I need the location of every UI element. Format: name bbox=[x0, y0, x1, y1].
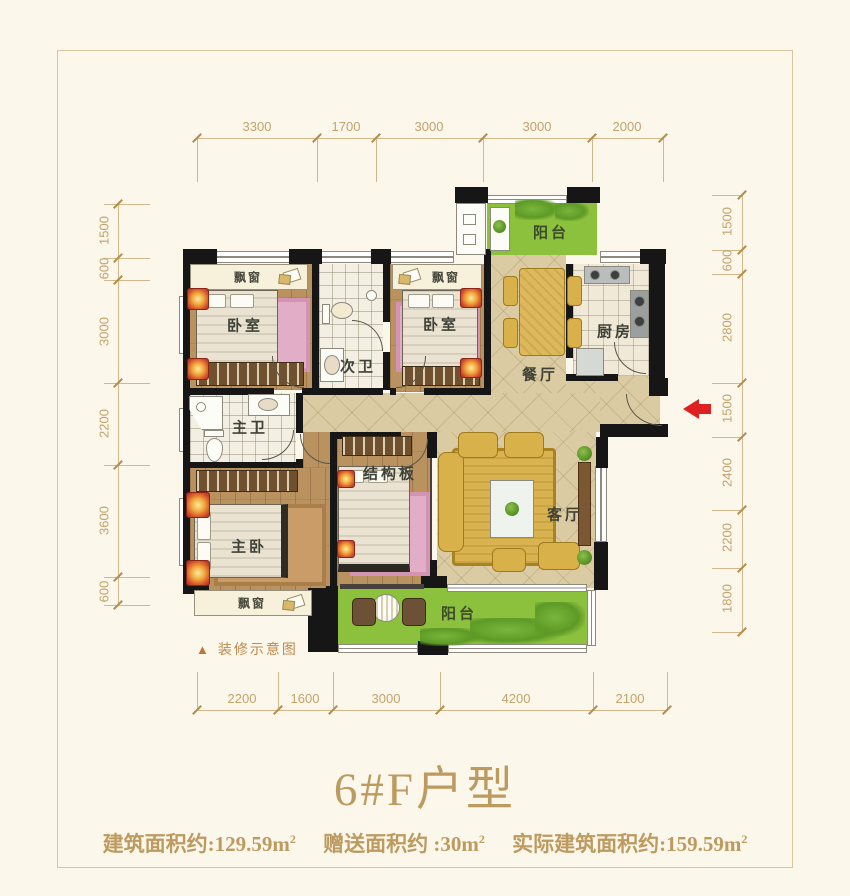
room-label-bedroom: 卧室 bbox=[423, 314, 459, 335]
dining-chair bbox=[503, 276, 518, 306]
plant bbox=[515, 200, 559, 220]
wall-segment bbox=[312, 388, 383, 395]
window bbox=[213, 251, 291, 263]
dim-ext bbox=[376, 138, 377, 182]
wall-segment bbox=[302, 388, 312, 395]
dim-line-bottom bbox=[197, 710, 668, 711]
entry-arrow-icon bbox=[698, 404, 711, 414]
window bbox=[320, 251, 374, 263]
dim-label: 1800 bbox=[720, 569, 735, 629]
balcony-railing bbox=[587, 590, 596, 646]
wall-segment bbox=[330, 432, 337, 590]
dim-ext bbox=[104, 465, 150, 466]
wall-segment bbox=[484, 249, 491, 395]
dim-ext bbox=[663, 138, 664, 182]
room-label-structure-slab: 结构板 bbox=[363, 463, 417, 484]
window bbox=[600, 251, 642, 263]
plant bbox=[555, 203, 589, 221]
area-building: 建筑面积约:129.59m2 bbox=[103, 832, 296, 856]
dim-ext bbox=[197, 672, 198, 710]
room-label-bedroom: 卧室 bbox=[227, 315, 263, 336]
dim-label: 2200 bbox=[720, 508, 735, 568]
dim-ext bbox=[197, 138, 198, 182]
dining-chair bbox=[503, 318, 518, 348]
toilet-tank bbox=[204, 430, 224, 437]
sofa bbox=[438, 452, 464, 552]
plant bbox=[577, 446, 592, 461]
room-label-second-bath: 次卫 bbox=[340, 356, 376, 377]
dim-label: 3000 bbox=[97, 302, 112, 362]
nightstand bbox=[337, 470, 355, 488]
equipment-platform bbox=[456, 203, 486, 255]
wall-segment bbox=[289, 249, 322, 264]
dim-ext bbox=[592, 138, 593, 182]
area-summary: 建筑面积约:129.59m2 赠送面积约 :30m2 实际建筑面积约:159.5… bbox=[0, 828, 850, 858]
balcony-table bbox=[372, 594, 400, 622]
unit-title: 6#F户型 bbox=[0, 750, 850, 819]
burner bbox=[590, 270, 600, 280]
room-label-bay-window: 飘窗 bbox=[238, 595, 266, 612]
wall-segment bbox=[649, 264, 665, 378]
window bbox=[390, 251, 454, 263]
sliding-door bbox=[447, 584, 587, 592]
toilet-tank bbox=[322, 304, 330, 324]
nightstand bbox=[187, 288, 209, 310]
dim-line-top bbox=[197, 138, 664, 139]
balcony-chair bbox=[402, 598, 426, 626]
table-plant bbox=[505, 502, 519, 516]
fridge bbox=[576, 348, 604, 376]
nightstand bbox=[187, 358, 209, 380]
dim-label: 1600 bbox=[275, 691, 335, 706]
dim-label: 2200 bbox=[212, 691, 272, 706]
dim-ext bbox=[483, 138, 484, 182]
wall-segment bbox=[186, 462, 298, 468]
triangle-icon: ▲ bbox=[196, 642, 211, 657]
wall-segment bbox=[427, 432, 437, 458]
dim-label: 2400 bbox=[720, 443, 735, 503]
room-label-dining: 餐厅 bbox=[522, 364, 558, 385]
balcony-chair bbox=[352, 598, 376, 626]
room-label-bay-window: 飘窗 bbox=[234, 269, 262, 286]
decoration-note: ▲ 装修示意图 bbox=[196, 639, 298, 659]
dim-line-left bbox=[118, 204, 119, 606]
dim-label: 4200 bbox=[486, 691, 546, 706]
dim-label: 600 bbox=[97, 562, 112, 622]
room-label-master-bath: 主卫 bbox=[232, 417, 268, 438]
armchair bbox=[504, 432, 544, 458]
dim-label: 1500 bbox=[720, 379, 735, 439]
dim-label: 2800 bbox=[720, 298, 735, 358]
burner bbox=[610, 270, 620, 280]
decoration-note-text: 装修示意图 bbox=[218, 639, 298, 659]
shower-head-icon bbox=[366, 290, 377, 301]
dim-label: 3000 bbox=[356, 691, 416, 706]
nightstand bbox=[460, 358, 482, 378]
armchair bbox=[538, 542, 580, 570]
dim-label: 1700 bbox=[316, 119, 376, 134]
sink-basin bbox=[324, 355, 340, 375]
wall-segment bbox=[183, 393, 190, 468]
wall-segment bbox=[312, 264, 319, 390]
wall-segment bbox=[594, 542, 608, 590]
wall-segment bbox=[296, 393, 303, 433]
dining-chair bbox=[567, 276, 582, 306]
dim-label: 2200 bbox=[97, 394, 112, 454]
wall-segment bbox=[424, 388, 484, 395]
dim-ext bbox=[317, 138, 318, 182]
dim-label: 3000 bbox=[507, 119, 567, 134]
nightstand bbox=[460, 288, 482, 308]
washer-drum-icon bbox=[493, 220, 506, 233]
sink-basin bbox=[258, 398, 278, 411]
wall-segment bbox=[600, 424, 668, 437]
dim-ext bbox=[440, 672, 441, 710]
equipment-icon bbox=[463, 234, 476, 245]
dim-ext bbox=[104, 383, 150, 384]
counter-burner bbox=[634, 296, 645, 307]
wall-segment bbox=[383, 264, 390, 322]
entry-arrow-icon bbox=[683, 399, 699, 419]
equipment-icon bbox=[463, 214, 476, 225]
room-label-balcony-top: 阳台 bbox=[533, 222, 569, 243]
dim-label: 2000 bbox=[597, 119, 657, 134]
plant bbox=[577, 550, 592, 565]
nightstand bbox=[186, 492, 210, 518]
wall-segment bbox=[596, 437, 608, 468]
dim-label: 600 bbox=[97, 239, 112, 299]
wall-thin bbox=[430, 458, 432, 560]
dim-ext bbox=[593, 672, 594, 710]
pillow bbox=[432, 294, 454, 308]
floorplan-page: 3300 1700 3000 3000 2000 2200 1600 3000 … bbox=[0, 0, 850, 896]
dim-label: 3600 bbox=[97, 491, 112, 551]
armchair bbox=[492, 548, 526, 572]
wall-segment bbox=[371, 249, 391, 264]
area-actual: 实际建筑面积约:159.59m2 bbox=[512, 832, 747, 856]
wall-thin bbox=[340, 584, 424, 589]
counter-burner bbox=[634, 316, 645, 327]
toilet bbox=[331, 302, 353, 319]
wall-segment bbox=[640, 249, 666, 264]
wall-segment bbox=[455, 187, 488, 203]
nightstand bbox=[186, 560, 210, 586]
room-label-master-bedroom: 主卧 bbox=[231, 536, 267, 557]
wall-segment bbox=[383, 352, 390, 390]
dim-label: 3000 bbox=[399, 119, 459, 134]
wall-segment bbox=[326, 586, 338, 652]
wall-segment bbox=[183, 249, 217, 264]
dining-chair bbox=[567, 318, 582, 348]
balcony-railing bbox=[338, 644, 418, 653]
dim-label: 600 bbox=[720, 231, 735, 291]
floor-corridor bbox=[303, 393, 600, 432]
room-label-balcony-bottom: 阳台 bbox=[441, 603, 477, 624]
pillow bbox=[230, 294, 254, 308]
room-label-kitchen: 厨房 bbox=[597, 321, 633, 342]
armchair bbox=[458, 432, 498, 458]
dim-ext bbox=[667, 672, 668, 710]
wall-segment bbox=[567, 187, 600, 203]
window bbox=[595, 466, 607, 542]
wall-segment bbox=[390, 388, 396, 395]
dim-label: 3300 bbox=[227, 119, 287, 134]
dining-table bbox=[519, 268, 565, 356]
room-label-living: 客厅 bbox=[547, 504, 583, 525]
plant bbox=[420, 628, 480, 646]
plant bbox=[535, 602, 585, 636]
wardrobe bbox=[196, 470, 298, 492]
room-label-bay-window: 飘窗 bbox=[432, 269, 460, 286]
nightstand bbox=[337, 540, 355, 558]
dim-label: 2100 bbox=[600, 691, 660, 706]
area-gift: 赠送面积约 :30m2 bbox=[323, 832, 485, 856]
pillow bbox=[408, 294, 430, 308]
shower-head-icon bbox=[196, 402, 206, 412]
